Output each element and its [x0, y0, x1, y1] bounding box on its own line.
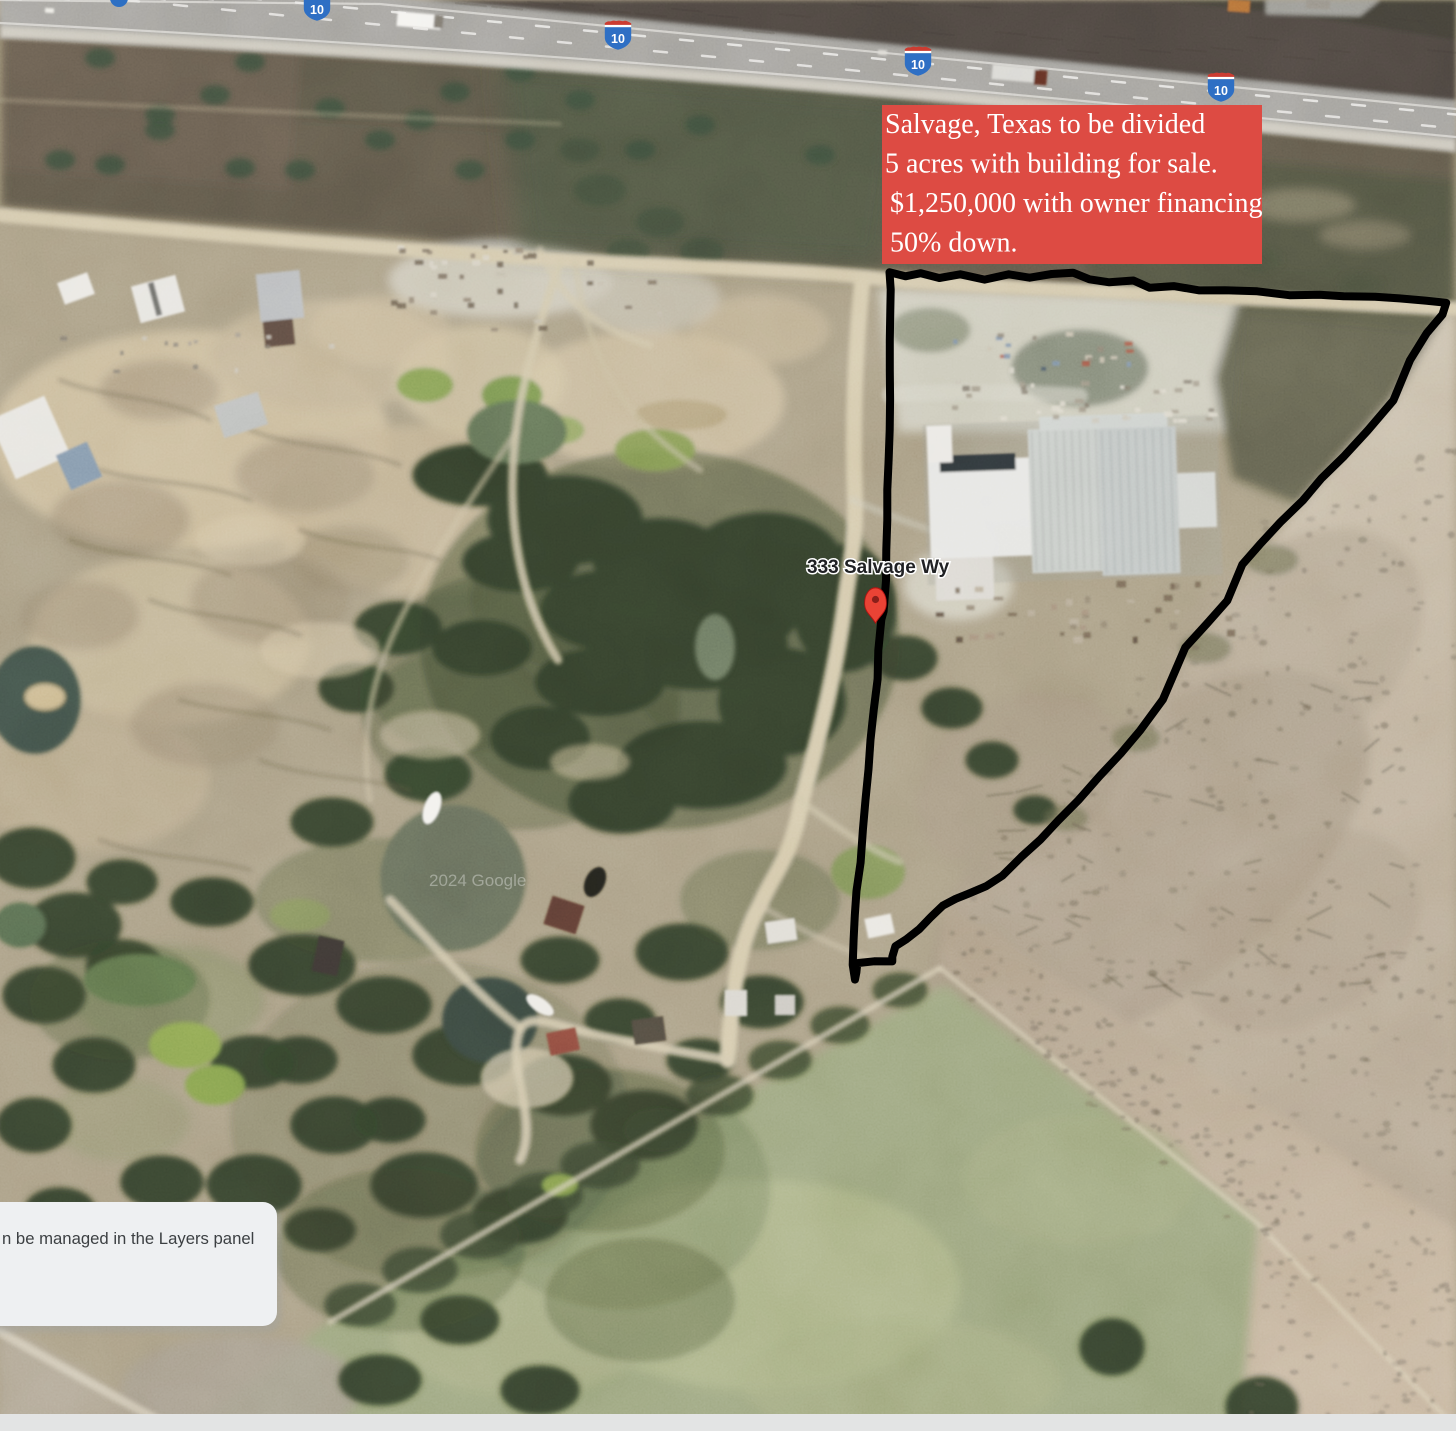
svg-text:10: 10: [1214, 84, 1228, 98]
svg-text:n be managed in the Layers pan: n be managed in the Layers panel: [2, 1229, 254, 1248]
svg-text:10: 10: [611, 32, 625, 46]
svg-text:10: 10: [911, 58, 925, 72]
svg-text:2024 Google: 2024 Google: [429, 871, 526, 890]
svg-text:333 Salvage Wy: 333 Salvage Wy: [807, 557, 950, 578]
svg-text:10: 10: [310, 3, 324, 17]
